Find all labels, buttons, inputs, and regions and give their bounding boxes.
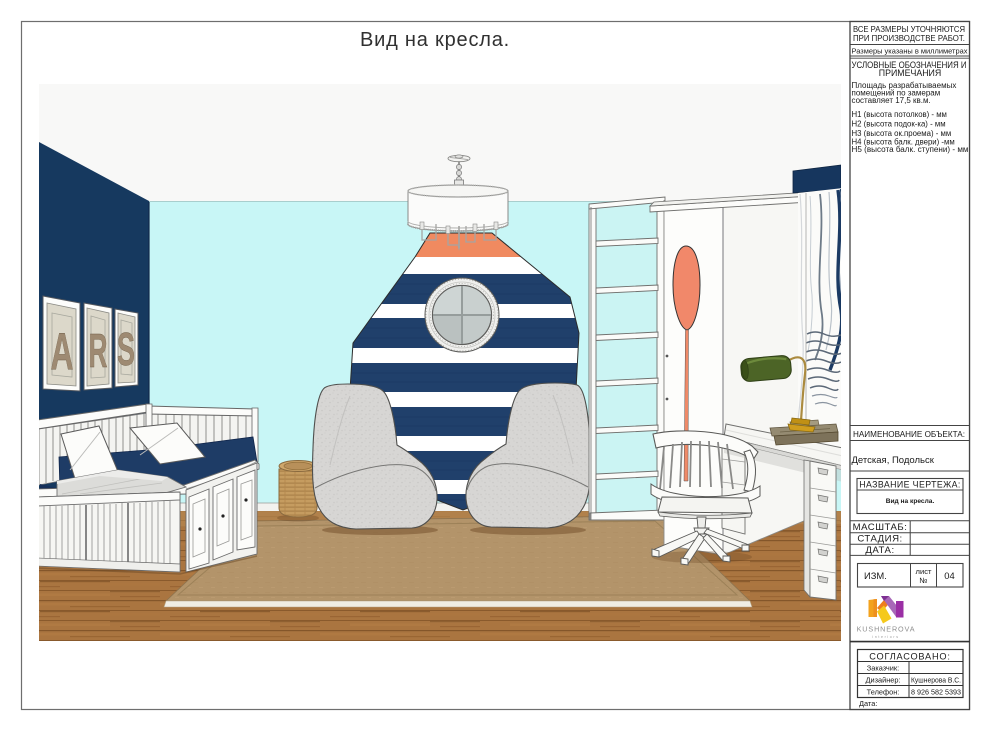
- svg-text:№: №: [919, 576, 927, 585]
- svg-text:Н1 (высота потолков) - мм: Н1 (высота потолков) - мм: [852, 110, 947, 119]
- svg-text:Дата:: Дата:: [859, 699, 877, 708]
- svg-text:04: 04: [944, 570, 954, 581]
- svg-text:A: A: [51, 323, 74, 381]
- svg-text:Вид на кресла.: Вид на кресла.: [886, 498, 935, 505]
- svg-text:R: R: [89, 325, 108, 378]
- svg-text:Заказчик:: Заказчик:: [867, 664, 899, 673]
- svg-text:interiors: interiors: [872, 635, 899, 639]
- svg-text:Н2 (высота подок-ка) - мм: Н2 (высота подок-ка) - мм: [852, 120, 946, 129]
- svg-text:составляет 17,5 кв.м.: составляет 17,5 кв.м.: [852, 96, 931, 105]
- svg-text:СТАДИЯ:: СТАДИЯ:: [857, 534, 902, 545]
- svg-text:лист: лист: [916, 567, 932, 576]
- svg-text:Вид на кресла.: Вид на кресла.: [360, 29, 510, 51]
- svg-text:Кушнерова В.С.: Кушнерова В.С.: [911, 676, 961, 685]
- svg-text:НАЗВАНИЕ ЧЕРТЕЖА:: НАЗВАНИЕ ЧЕРТЕЖА:: [859, 480, 961, 490]
- svg-text:НАИМЕНОВАНИЕ ОБЪЕКТА:: НАИМЕНОВАНИЕ ОБЪЕКТА:: [853, 429, 965, 439]
- svg-text:Детская, Подольск: Детская, Подольск: [852, 455, 935, 466]
- svg-text:Н5 (высота балк. ступени) - мм: Н5 (высота балк. ступени) - мм: [852, 145, 969, 154]
- svg-text:8 926 582 5393: 8 926 582 5393: [911, 688, 961, 697]
- svg-text:ИЗМ.: ИЗМ.: [864, 570, 887, 581]
- svg-text:Размеры указаны в миллиметрах: Размеры указаны в миллиметрах: [852, 47, 968, 56]
- svg-text:S: S: [117, 323, 135, 375]
- svg-text:Телефон:: Телефон:: [867, 688, 900, 697]
- svg-text:ПРИ ПРОИЗВОДСТВЕ РАБОТ.: ПРИ ПРОИЗВОДСТВЕ РАБОТ.: [853, 33, 965, 43]
- svg-text:ПРИМЕЧАНИЯ: ПРИМЕЧАНИЯ: [879, 68, 941, 78]
- svg-text:СОГЛАСОВАНО:: СОГЛАСОВАНО:: [869, 652, 950, 662]
- svg-text:KUSHNEROVA: KUSHNEROVA: [857, 625, 916, 634]
- svg-text:Дизайнер:: Дизайнер:: [865, 676, 900, 685]
- svg-text:МАСШТАБ:: МАСШТАБ:: [853, 522, 908, 533]
- svg-text:ДАТА:: ДАТА:: [865, 545, 894, 556]
